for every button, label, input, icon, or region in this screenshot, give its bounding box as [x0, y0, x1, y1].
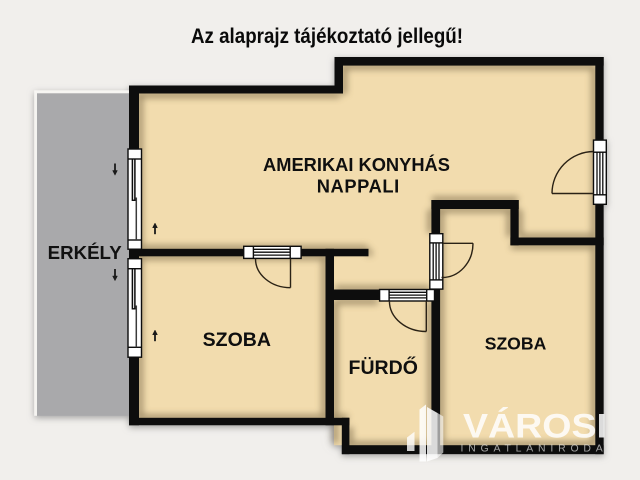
- svg-text:INGATLANIRODA: INGATLANIRODA: [461, 443, 608, 454]
- svg-text:SZOBA: SZOBA: [203, 329, 271, 351]
- svg-text:FÜRDŐ: FÜRDŐ: [349, 356, 418, 379]
- svg-text:ERKÉLY: ERKÉLY: [48, 242, 123, 263]
- svg-text:Az alaprajz tájékoztató jelleg: Az alaprajz tájékoztató jellegű!: [191, 25, 463, 48]
- svg-text:NAPPALI: NAPPALI: [317, 176, 400, 197]
- svg-text:VÁROSI: VÁROSI: [463, 406, 607, 446]
- svg-text:SZOBA: SZOBA: [485, 334, 547, 354]
- svg-text:AMERIKAI KONYHÁS: AMERIKAI KONYHÁS: [263, 154, 450, 175]
